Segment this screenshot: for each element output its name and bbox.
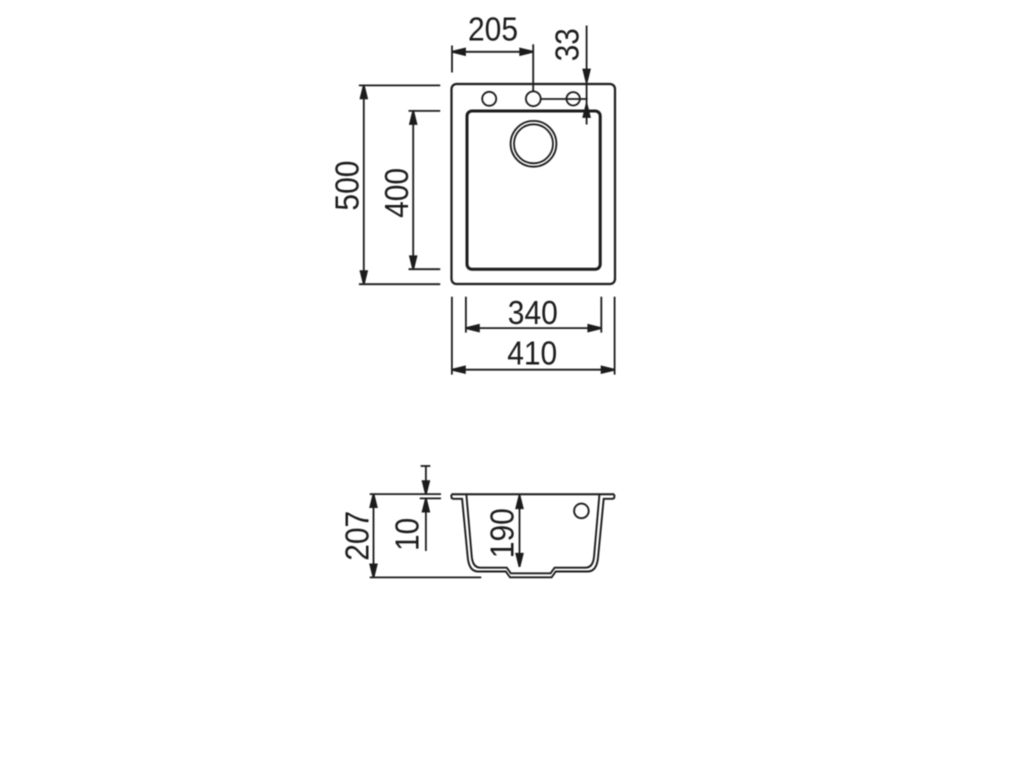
svg-text:207: 207 [339,511,376,561]
svg-text:190: 190 [484,508,521,558]
svg-text:400: 400 [378,168,415,218]
svg-text:340: 340 [508,294,558,331]
svg-text:500: 500 [329,161,366,211]
svg-text:33: 33 [549,28,586,61]
svg-text:10: 10 [389,518,426,551]
svg-text:205: 205 [468,11,518,48]
svg-text:410: 410 [507,334,557,371]
